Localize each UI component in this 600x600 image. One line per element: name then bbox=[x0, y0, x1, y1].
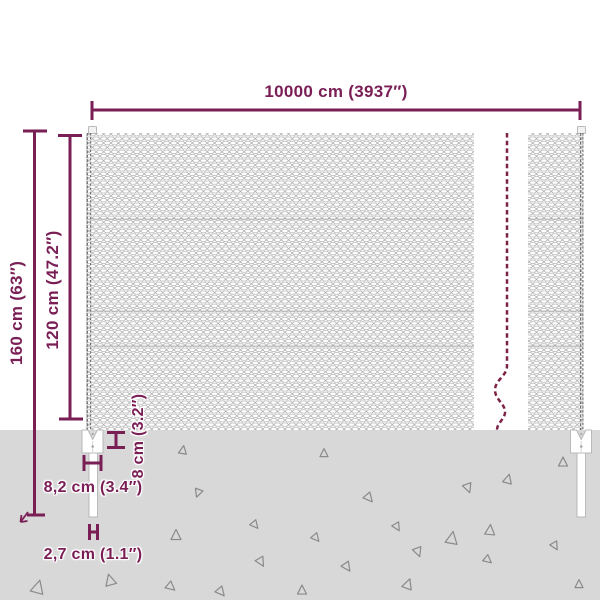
fence-break-line bbox=[495, 133, 507, 430]
label-total-length: 10000 cm (3937″) bbox=[264, 82, 407, 102]
fence-mesh-main bbox=[86, 133, 474, 430]
fence-mesh-continuation bbox=[528, 133, 584, 430]
label-anchor-width: 8,2 cm (3.4″) bbox=[44, 479, 143, 497]
right-post-cap bbox=[578, 127, 586, 134]
right-post-spike bbox=[577, 453, 586, 517]
label-anchor-depth: 8 cm (3.2″) bbox=[130, 394, 148, 479]
left-post-cap bbox=[89, 127, 97, 134]
label-spike-width: 2,7 cm (1.1″) bbox=[44, 546, 143, 564]
dim-total-length bbox=[92, 101, 580, 120]
label-post-height: 160 cm (63″) bbox=[7, 261, 27, 365]
label-fence-height: 120 cm (47.2″) bbox=[43, 230, 63, 349]
fence-diagram: 10000 cm (3937″) 160 cm (63″) 120 cm (47… bbox=[0, 0, 600, 600]
